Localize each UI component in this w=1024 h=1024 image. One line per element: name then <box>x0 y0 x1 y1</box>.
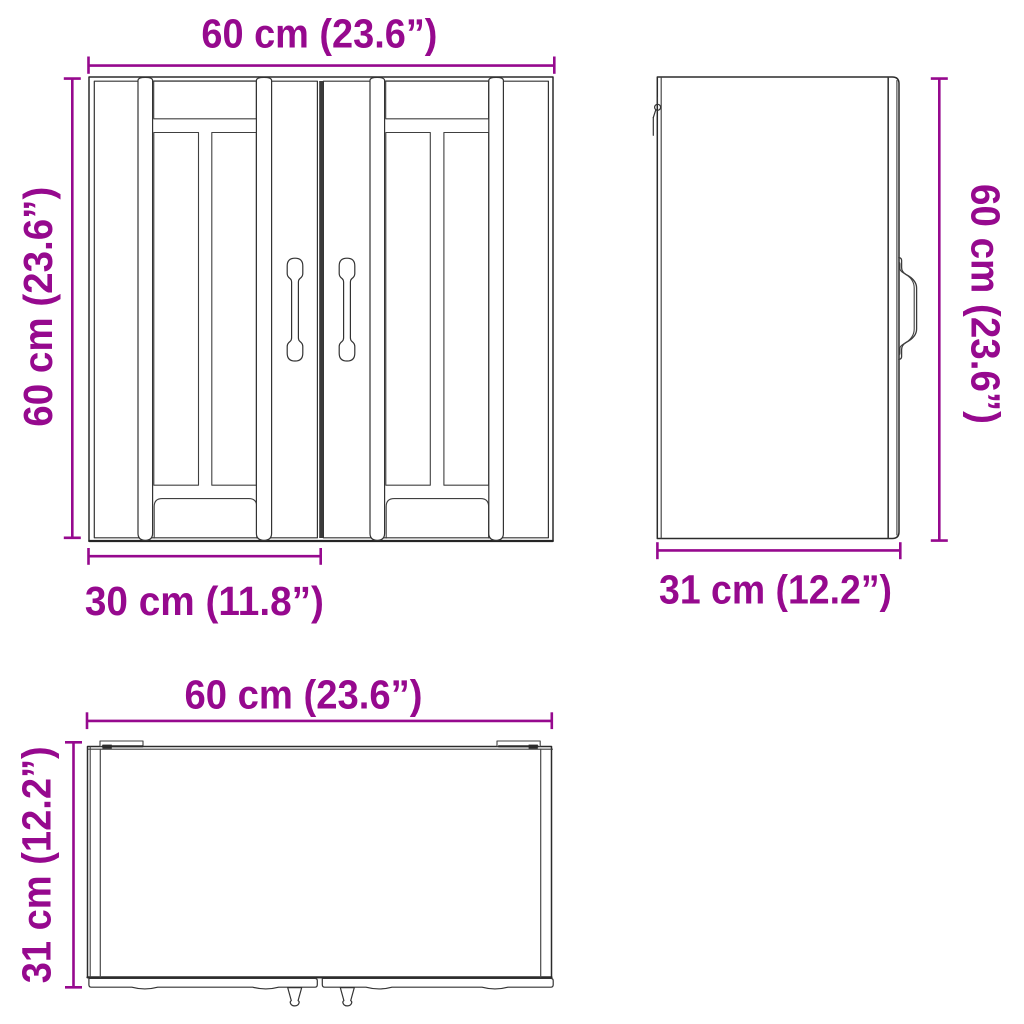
svg-text:31 cm (12.2”): 31 cm (12.2”) <box>14 746 60 983</box>
svg-text:30 cm (11.8”): 30 cm (11.8”) <box>85 578 324 624</box>
svg-text:60 cm (23.6”): 60 cm (23.6”) <box>963 184 1009 424</box>
svg-text:60 cm (23.6”): 60 cm (23.6”) <box>185 672 423 718</box>
svg-text:31 cm (12.2”): 31 cm (12.2”) <box>659 567 892 613</box>
svg-text:60 cm (23.6”): 60 cm (23.6”) <box>201 11 437 57</box>
svg-text:60 cm (23.6”): 60 cm (23.6”) <box>15 187 61 427</box>
